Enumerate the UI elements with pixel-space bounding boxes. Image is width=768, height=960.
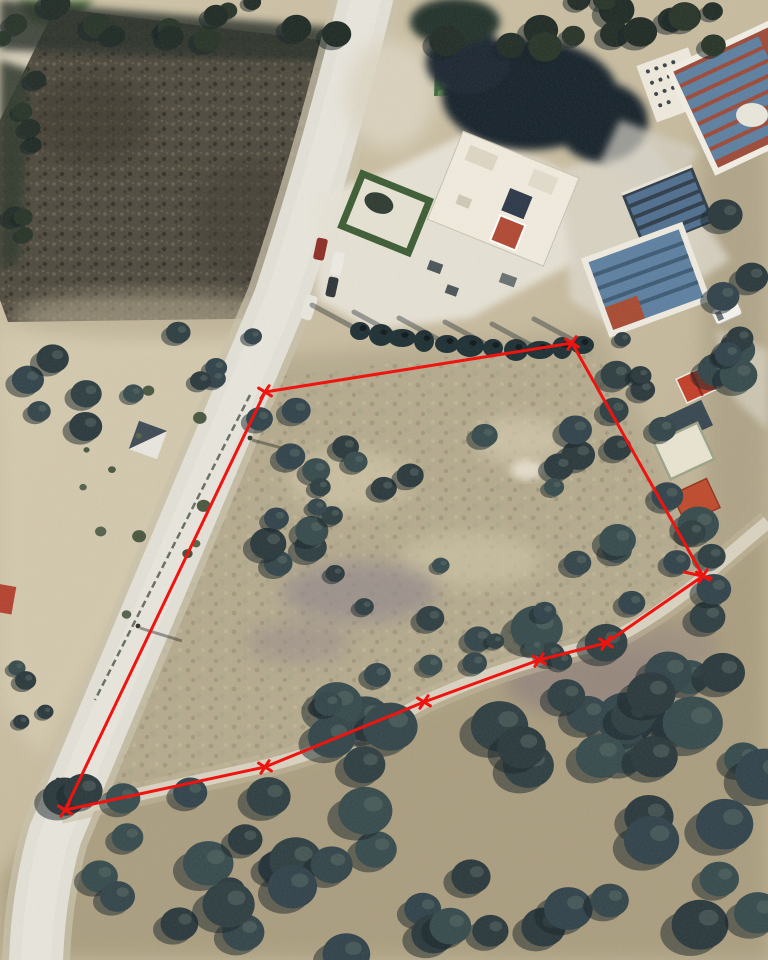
aerial-satellite-image: [0, 0, 768, 960]
satellite-image-viewport: Aerial satellite photograph of a land pa…: [0, 0, 768, 960]
photo-grain: [0, 0, 768, 960]
